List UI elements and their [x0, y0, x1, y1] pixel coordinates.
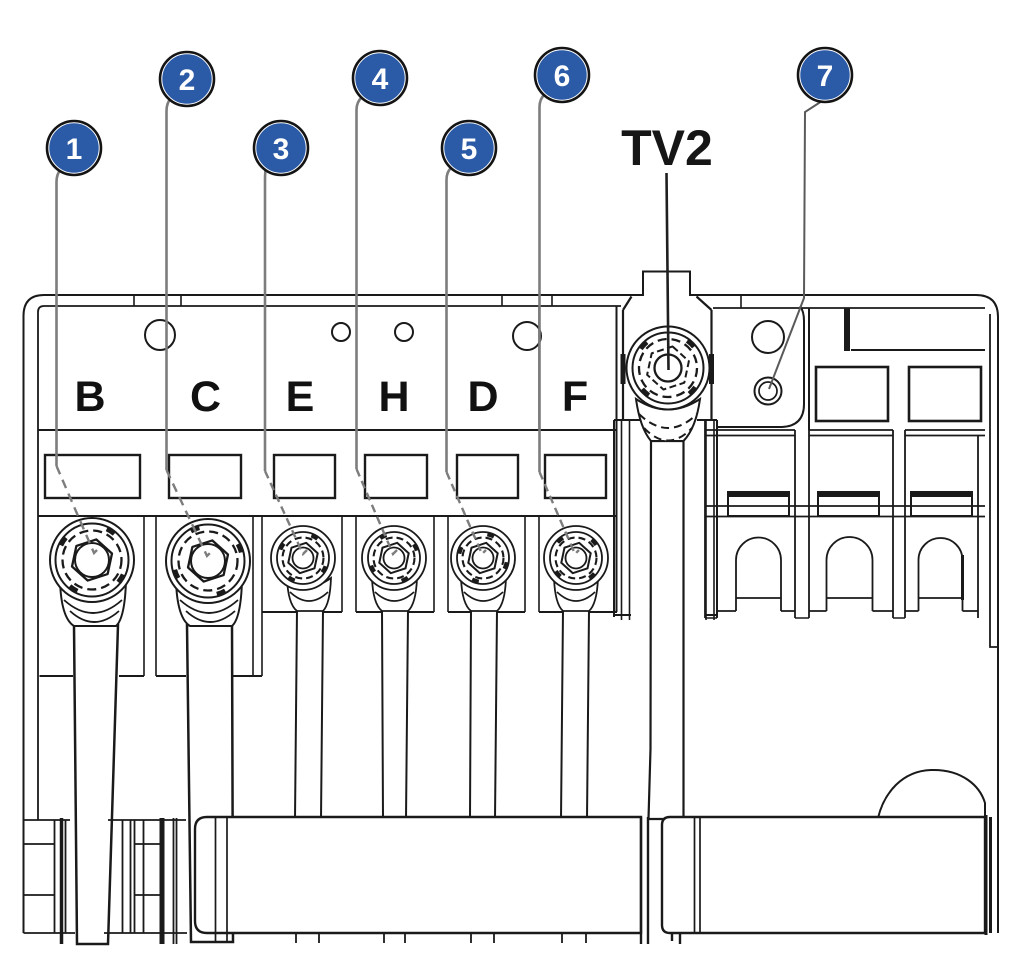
svg-text:H: H — [378, 373, 409, 421]
svg-text:6: 6 — [554, 60, 571, 93]
svg-text:TV2: TV2 — [621, 120, 713, 176]
svg-text:D: D — [467, 373, 498, 421]
svg-text:7: 7 — [817, 60, 834, 93]
svg-text:1: 1 — [66, 133, 83, 166]
svg-text:5: 5 — [461, 133, 478, 166]
svg-text:4: 4 — [372, 63, 389, 96]
svg-text:2: 2 — [179, 64, 196, 97]
svg-text:3: 3 — [273, 133, 290, 166]
svg-text:E: E — [286, 373, 315, 421]
svg-text:B: B — [74, 373, 105, 421]
svg-text:F: F — [562, 373, 588, 421]
svg-text:C: C — [190, 373, 221, 421]
